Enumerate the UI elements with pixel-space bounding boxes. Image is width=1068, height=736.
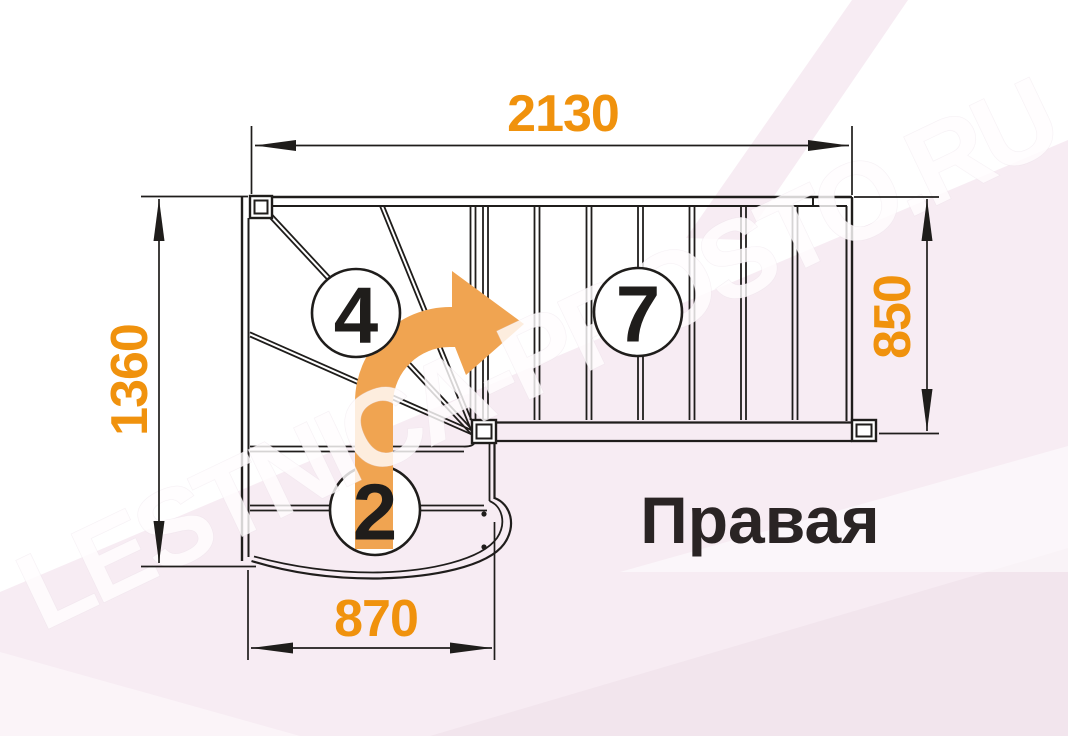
bottom-right-newel-post: [852, 420, 876, 441]
winder-steps-count: 4: [334, 271, 379, 360]
baluster-dot: [481, 544, 486, 549]
staircase-plan-page: LESTNICA-PROSTO.RU 4 7 2 2130 1360 850: [0, 0, 1068, 736]
dimension-top-value: 2130: [507, 85, 619, 143]
dimension-left-value: 1360: [101, 324, 159, 436]
dimension-right-value: 850: [864, 275, 922, 359]
dim-arrowhead-left: [255, 140, 296, 151]
baluster-dot: [481, 511, 486, 516]
bottom-steps-count: 2: [353, 468, 398, 557]
upper-flight-steps-count: 7: [616, 270, 661, 359]
dim-arrowhead-up: [154, 199, 165, 241]
dimension-bottom-value: 870: [334, 590, 418, 648]
staircase-plan-drawing: LESTNICA-PROSTO.RU 4 7 2 2130 1360 850: [0, 0, 1068, 736]
orientation-label: Правая: [640, 483, 879, 557]
top-left-newel-post: [250, 196, 272, 218]
